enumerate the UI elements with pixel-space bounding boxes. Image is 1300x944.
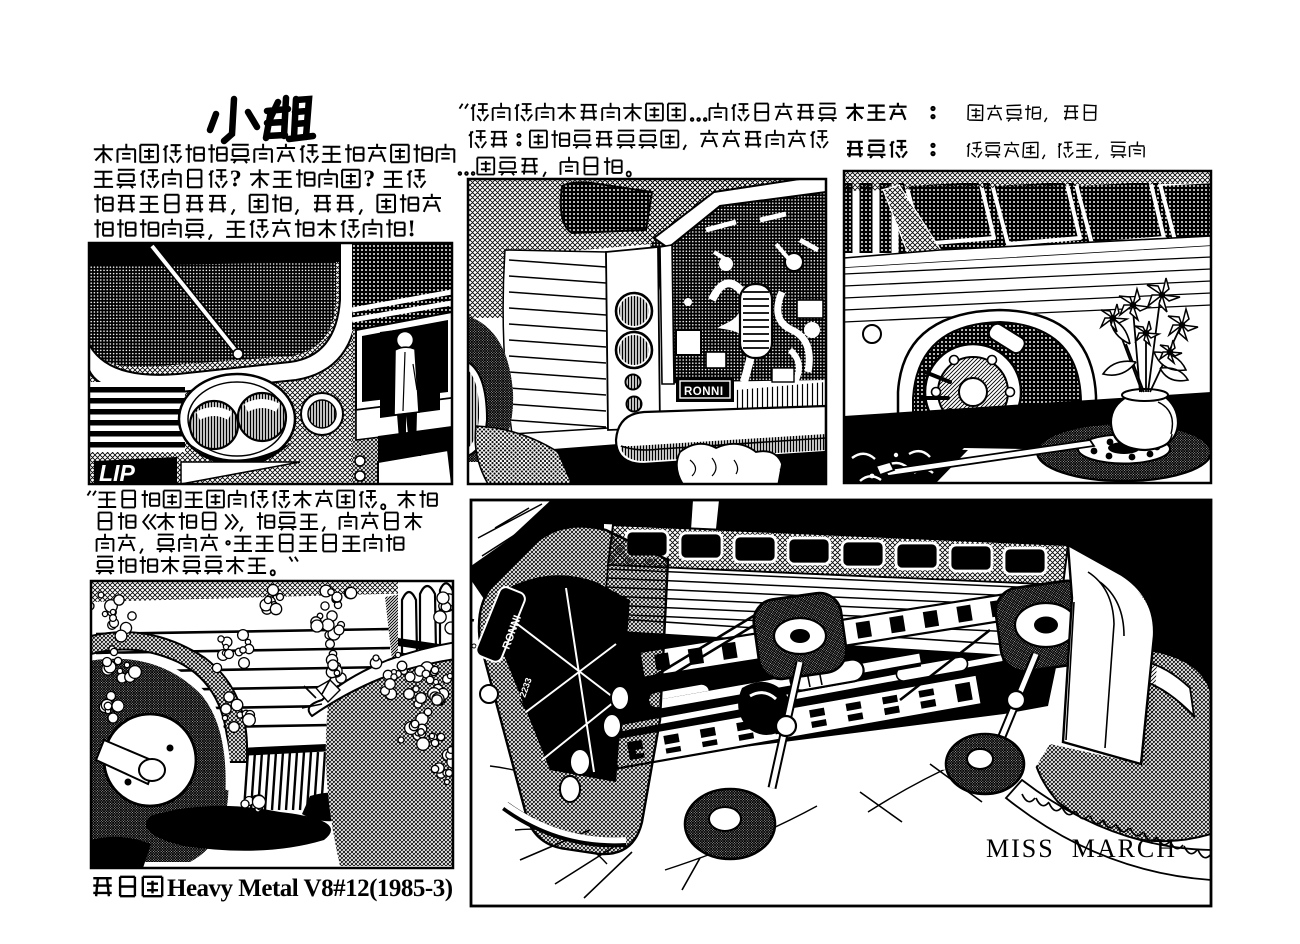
svg-text:?: ? [363,167,375,193]
svg-text:Heavy Metal V8#12(1985-3): Heavy Metal V8#12(1985-3) [167,875,453,902]
svg-text:?: ? [230,167,242,193]
svg-text:LIP: LIP [99,460,135,486]
svg-text:MISS MARCH: MISS MARCH [986,834,1177,863]
svg-text:RONNI: RONNI [684,386,724,398]
svg-text:!: ! [408,217,416,243]
